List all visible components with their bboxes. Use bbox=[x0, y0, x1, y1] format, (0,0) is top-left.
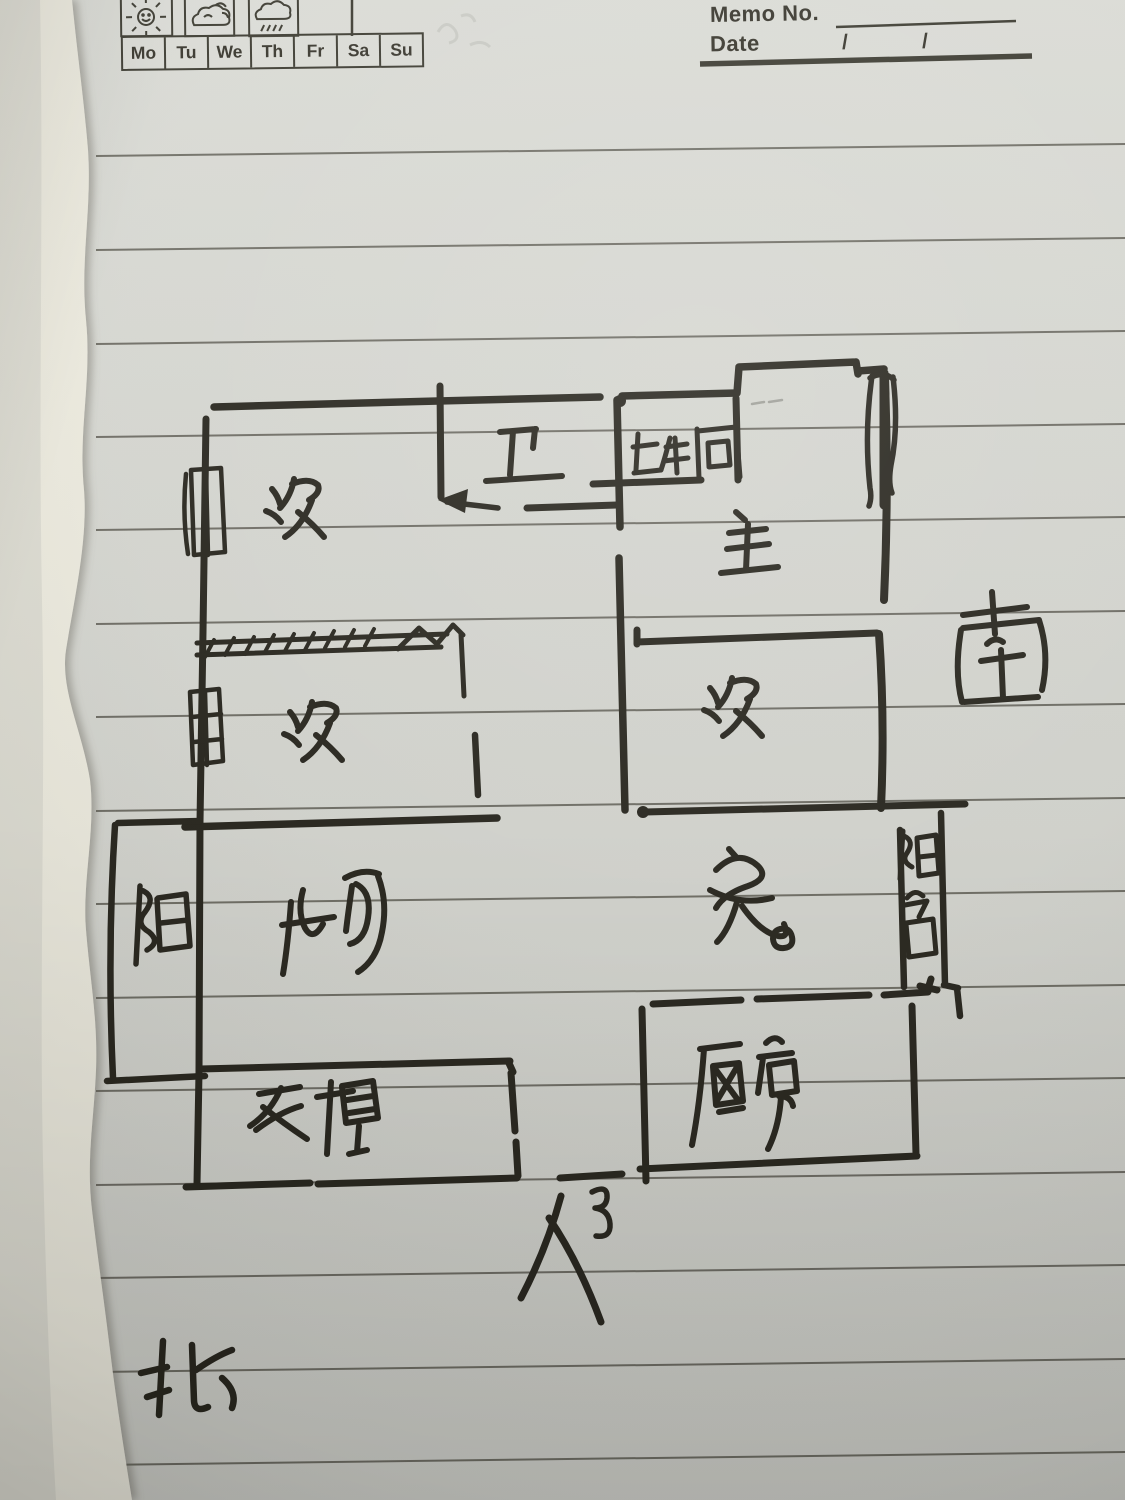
label-bedroom-mid-right bbox=[704, 678, 762, 736]
notebook-memo-page-photo: Mo Tu We Th Fr Sa Su Memo No. Date / / bbox=[0, 0, 1125, 1500]
day-cell-th: Th bbox=[252, 36, 295, 68]
day-cell-we: We bbox=[209, 36, 252, 68]
wall-top bbox=[214, 362, 884, 407]
wall-middle bbox=[617, 400, 625, 810]
day-cell-tu: Tu bbox=[166, 37, 209, 69]
label-balcony-left bbox=[136, 886, 190, 964]
day-cell-sa: Sa bbox=[338, 35, 381, 67]
weather-box-rainy bbox=[248, 0, 299, 37]
wall-balcony-left bbox=[107, 821, 205, 1081]
label-compass-south bbox=[958, 592, 1046, 702]
bleed-through-marks bbox=[438, 15, 490, 47]
label-compass-north bbox=[141, 1341, 234, 1415]
wall-end-dot bbox=[637, 806, 649, 818]
day-of-week-row: Mo Tu We Th Fr Sa Su bbox=[121, 32, 424, 71]
pencil-faint-dashes bbox=[752, 400, 782, 404]
weather-box-cloudy bbox=[184, 0, 235, 37]
torn-paper-edge bbox=[0, 0, 132, 1500]
header-rules bbox=[352, 0, 1032, 64]
wall-living-top bbox=[185, 818, 497, 827]
date-slash-1: / bbox=[842, 31, 848, 55]
day-cell-su: Su bbox=[381, 34, 422, 65]
weather-box-sunny bbox=[120, 0, 173, 37]
sun-face-icon bbox=[122, 0, 171, 35]
window-symbol-2 bbox=[190, 689, 223, 765]
label-entrance bbox=[521, 1189, 610, 1322]
memo-no-label: Memo No. bbox=[710, 0, 820, 28]
label-cloakroom bbox=[250, 1081, 378, 1154]
date-label: Date bbox=[710, 31, 760, 58]
wall-bed2-door bbox=[475, 735, 478, 795]
label-bathroom-1 bbox=[486, 429, 562, 481]
day-cell-mo: Mo bbox=[123, 37, 166, 69]
date-slash-2: / bbox=[922, 30, 928, 54]
ruled-lines bbox=[96, 144, 1125, 1465]
hatched-wall-zigzag bbox=[398, 625, 464, 696]
wall-bed3 bbox=[637, 630, 965, 812]
wall-junction-dot bbox=[614, 395, 626, 407]
label-bathroom-2 bbox=[633, 427, 740, 478]
rain-cloud-icon bbox=[250, 0, 297, 35]
label-kitchen bbox=[692, 1038, 797, 1149]
day-cell-fr: Fr bbox=[295, 35, 338, 67]
page-scene bbox=[0, 0, 1125, 1500]
label-living-room bbox=[282, 872, 384, 974]
label-dining bbox=[710, 849, 792, 948]
label-bedroom-mid-left bbox=[284, 702, 342, 760]
cloud-sun-icon bbox=[186, 0, 233, 35]
